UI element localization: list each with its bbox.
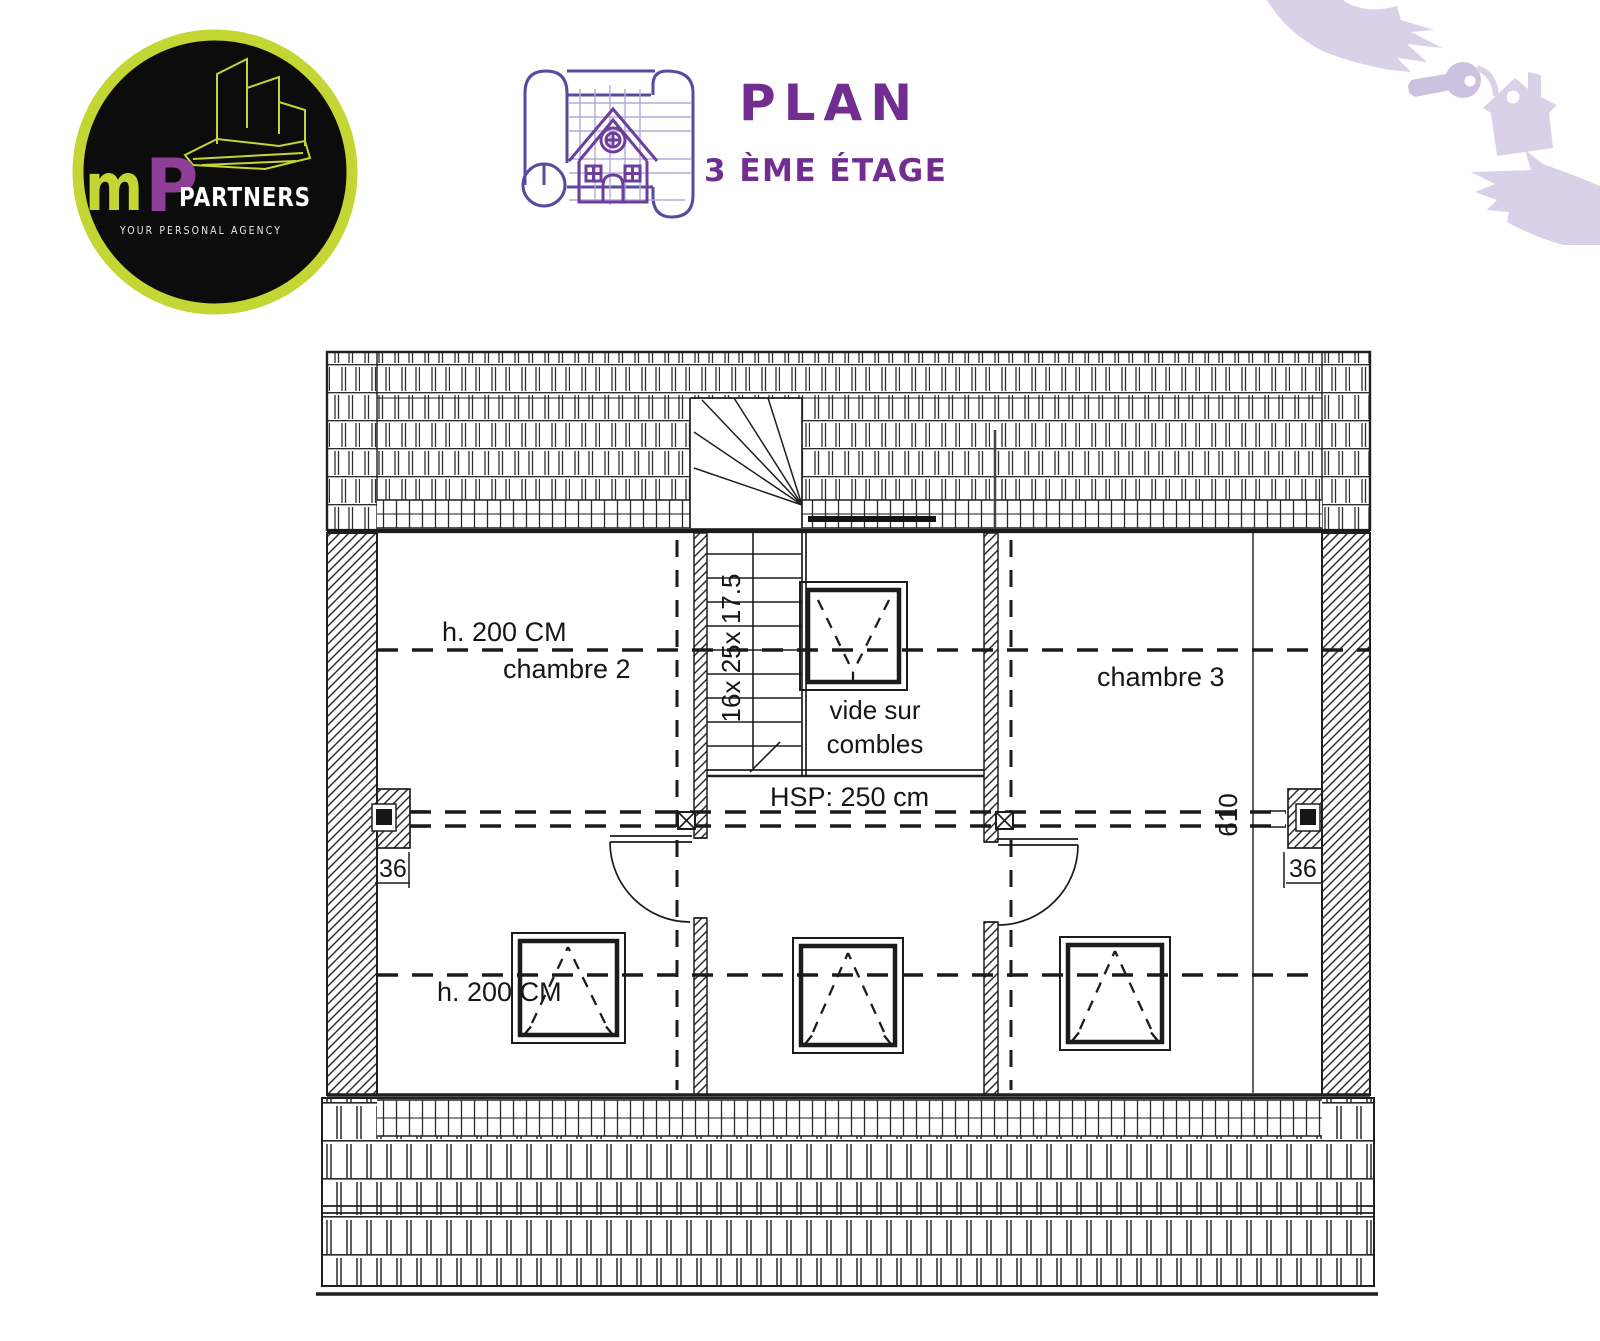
key-handover-illustration bbox=[1225, 0, 1600, 245]
skylight-window-void bbox=[800, 582, 907, 690]
key-icon bbox=[1408, 62, 1496, 98]
agency-logo: m P PARTNERS YOUR PERSONAL AGENCY bbox=[65, 22, 365, 322]
logo-letter-m: m bbox=[85, 149, 143, 226]
void-label-line2: combles bbox=[827, 729, 924, 759]
lower-height-label: h. 200 CM bbox=[437, 977, 562, 1007]
room2-name-label: chambre 2 bbox=[503, 654, 631, 684]
door-room3 bbox=[984, 839, 1078, 925]
skylight-window-hall bbox=[793, 938, 903, 1053]
left-wall-window-marker bbox=[376, 809, 392, 825]
floor-plan: h. 200 CM chambre 2 chambre 3 vide sur c… bbox=[300, 340, 1400, 1308]
logo-tagline: YOUR PERSONAL AGENCY bbox=[119, 225, 282, 237]
right-wall-window-marker bbox=[1300, 809, 1316, 825]
page-title: PLAN bbox=[739, 74, 920, 132]
giving-hand-icon bbox=[1267, 0, 1442, 72]
void-label-line1: vide sur bbox=[829, 695, 920, 725]
room3-name-label: chambre 3 bbox=[1097, 662, 1225, 692]
flyer-page: m P PARTNERS YOUR PERSONAL AGENCY bbox=[0, 0, 1600, 1341]
page-subtitle: 3 ÈME ÉTAGE bbox=[704, 153, 947, 189]
door-room2 bbox=[610, 836, 707, 922]
skylight-window-room3 bbox=[1060, 937, 1170, 1050]
roof-band-bottom bbox=[316, 1095, 1378, 1294]
receiving-hand-icon bbox=[1471, 150, 1600, 245]
room-depth-dim-label: 610 bbox=[1213, 793, 1243, 836]
ceiling-height-label: HSP: 250 cm bbox=[770, 782, 929, 812]
stairs-dim-label: 16x 25x 17.5 bbox=[716, 574, 746, 723]
blueprint-icon bbox=[495, 45, 700, 240]
right-wall-dim-label: 36 bbox=[1289, 855, 1317, 883]
left-wall-dim-label: 36 bbox=[379, 855, 407, 883]
roof-band-top bbox=[327, 352, 1370, 531]
logo-wordmark: PARTNERS bbox=[179, 183, 311, 213]
room2-height-label: h. 200 CM bbox=[442, 617, 567, 647]
